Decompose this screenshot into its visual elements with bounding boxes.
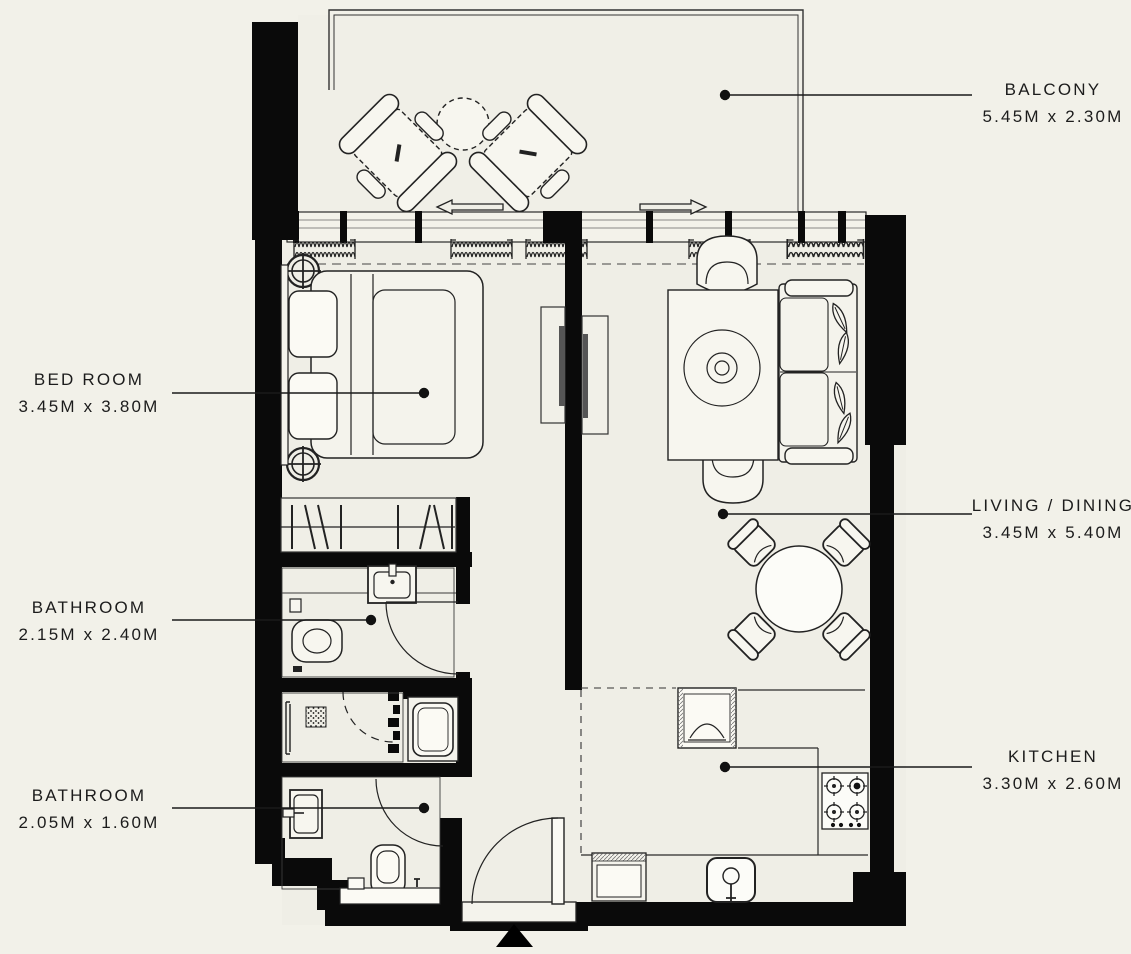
headboard (281, 265, 288, 465)
faucet-icon (389, 564, 396, 576)
entry-door-leaf (552, 818, 564, 904)
tv-unit-bedroom (541, 307, 565, 423)
dining-table (756, 546, 842, 632)
entry-threshold (462, 902, 576, 922)
shower-drain (306, 707, 326, 727)
dishwasher (592, 853, 646, 901)
label-kitchen: KITCHEN 3.30M x 2.60M (968, 743, 1131, 797)
room-dimensions: 3.45M x 5.40M (968, 519, 1131, 546)
wash-basin-1 (368, 564, 416, 603)
wall-right-upper (865, 215, 906, 445)
faucet-icon (283, 809, 294, 817)
room-name: KITCHEN (968, 743, 1131, 770)
tv-unit-living (582, 316, 608, 434)
pillow (289, 291, 337, 357)
wall-right-lower (870, 443, 894, 905)
gas-hob (822, 773, 868, 829)
coffee-table (668, 290, 778, 460)
label-bathroom-1: BATHROOM 2.15M x 2.40M (4, 594, 174, 648)
label-living-dining: LIVING / DINING 3.45M x 5.40M (968, 492, 1131, 546)
fridge (678, 688, 736, 748)
room-dimensions: 3.45M x 3.80M (4, 393, 174, 420)
room-name: BATHROOM (4, 782, 174, 809)
double-bed (281, 265, 483, 465)
room-name: BED ROOM (4, 366, 174, 393)
wall-left (255, 240, 282, 843)
armchair-top (697, 236, 757, 294)
vanity-shelf (340, 888, 440, 904)
sofa (779, 280, 857, 464)
label-bathroom-2: BATHROOM 2.05M x 1.60M (4, 782, 174, 836)
label-bedroom: BED ROOM 3.45M x 3.80M (4, 366, 174, 420)
wall-middle (565, 240, 582, 690)
kitchen-sink (707, 858, 755, 902)
closet-area (281, 498, 456, 552)
room-name: BALCONY (968, 76, 1131, 103)
floor-plan-page: BALCONY 5.45M x 2.30M BED ROOM 3.45M x 3… (0, 0, 1131, 954)
balcony-table (437, 98, 489, 150)
wall-window-pier (543, 211, 582, 243)
room-dimensions: 2.05M x 1.60M (4, 809, 174, 836)
room-name: LIVING / DINING (968, 492, 1131, 519)
washing-machine (408, 697, 458, 761)
label-balcony: BALCONY 5.45M x 2.30M (968, 76, 1131, 130)
room-dimensions: 2.15M x 2.40M (4, 621, 174, 648)
wall-balcony-left (252, 22, 298, 240)
soap-dish (348, 878, 364, 889)
pillow (289, 373, 337, 439)
room-dimensions: 5.45M x 2.30M (968, 103, 1131, 130)
room-name: BATHROOM (4, 594, 174, 621)
wall-entry-left-jamb (440, 818, 462, 926)
room-dimensions: 3.30M x 2.60M (968, 770, 1131, 797)
wall-bottom (576, 902, 906, 926)
